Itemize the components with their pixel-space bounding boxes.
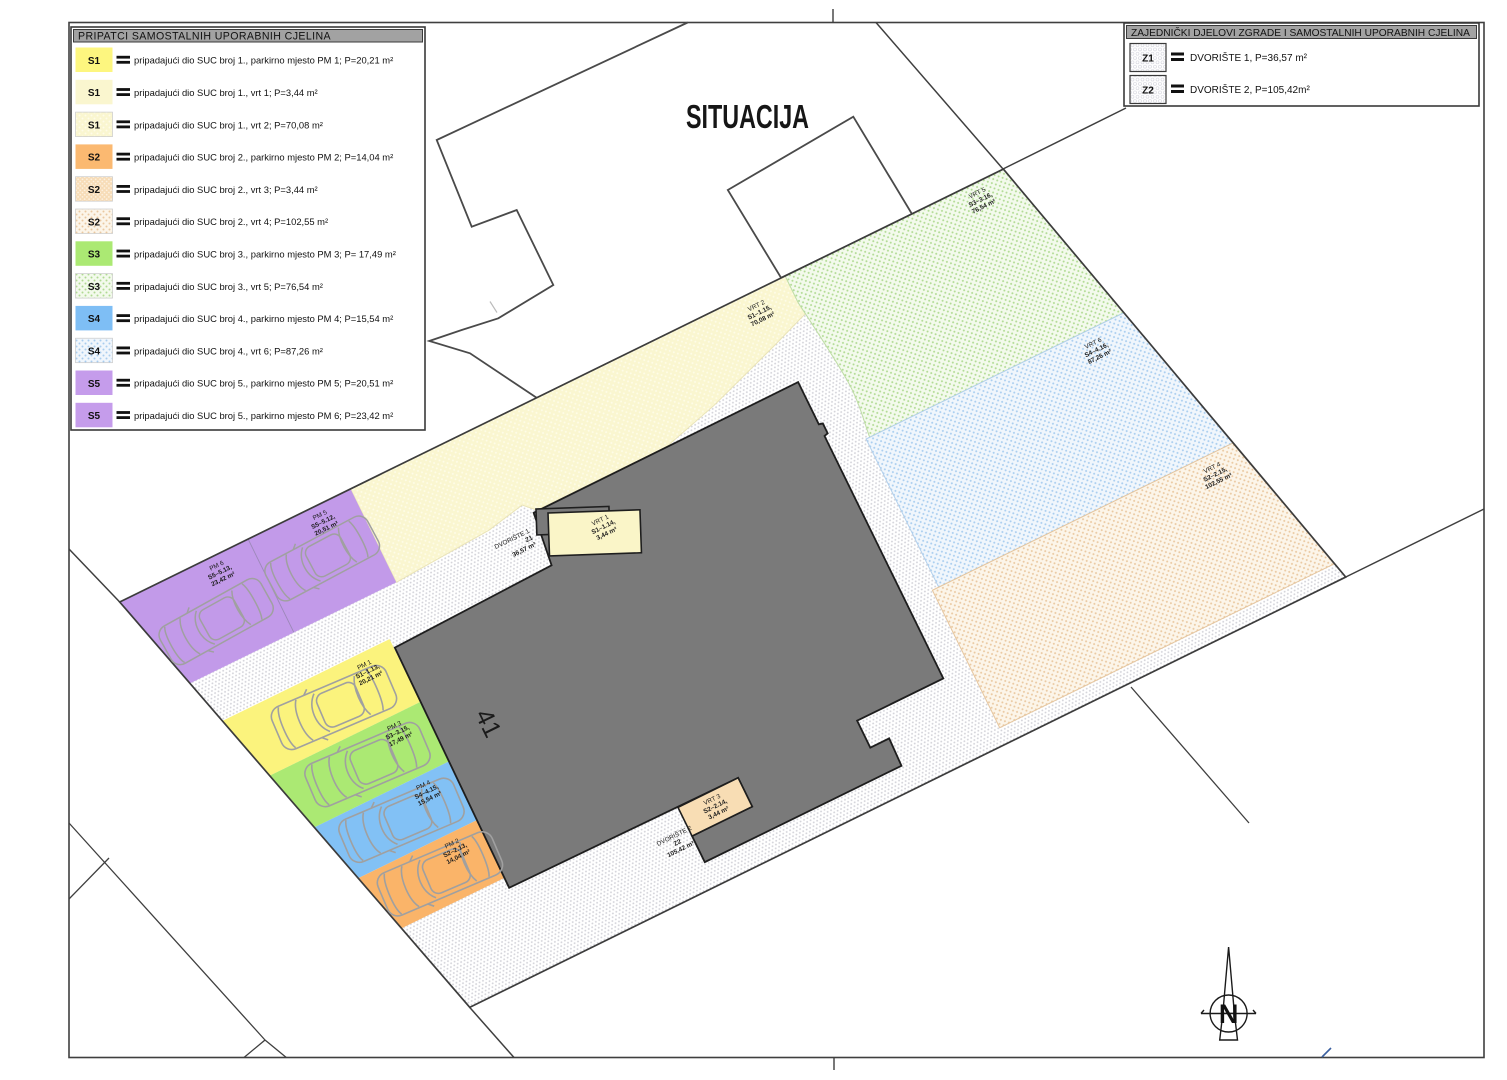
- svg-text:S3: S3: [88, 282, 101, 293]
- svg-text:pripadajući dio SUC broj 5., p: pripadajući dio SUC broj 5., parkirno mj…: [134, 410, 393, 421]
- svg-text:pripadajući dio SUC broj 3., v: pripadajući dio SUC broj 3., vrt 5; P=76…: [134, 281, 323, 292]
- svg-text:S1: S1: [88, 120, 101, 131]
- svg-text:S2: S2: [88, 153, 101, 164]
- svg-text:S5: S5: [88, 411, 101, 422]
- svg-text:pripadajući dio SUC broj 3., p: pripadajući dio SUC broj 3., parkirno mj…: [134, 249, 396, 260]
- svg-text:pripadajući dio SUC broj 2., v: pripadajući dio SUC broj 2., vrt 3; P=3,…: [134, 184, 318, 195]
- svg-text:SITUACIJA: SITUACIJA: [686, 98, 809, 135]
- svg-text:pripadajući dio SUC broj 4., v: pripadajući dio SUC broj 4., vrt 6; P=87…: [134, 345, 323, 356]
- svg-text:Z2: Z2: [1142, 86, 1154, 97]
- svg-text:pripadajući dio SUC broj 5., p: pripadajući dio SUC broj 5., parkirno mj…: [134, 378, 393, 389]
- svg-text:pripadajući dio SUC broj 4., p: pripadajući dio SUC broj 4., parkirno mj…: [134, 313, 393, 324]
- svg-text:pripadajući dio SUC broj 1., v: pripadajući dio SUC broj 1., vrt 2; P=70…: [134, 119, 323, 130]
- svg-text:DVORIŠTE 1, P=36,57 m²: DVORIŠTE 1, P=36,57 m²: [1190, 51, 1308, 64]
- svg-text:Z1: Z1: [1142, 54, 1154, 65]
- svg-text:S1: S1: [88, 88, 101, 99]
- svg-text:N: N: [1219, 999, 1239, 1029]
- svg-text:DVORIŠTE 2, P=105,42m²: DVORIŠTE 2, P=105,42m²: [1190, 83, 1310, 96]
- svg-text:S2: S2: [88, 185, 101, 196]
- svg-text:S5: S5: [88, 379, 101, 390]
- svg-text:pripadajući dio SUC broj 1., p: pripadajući dio SUC broj 1., parkirno mj…: [134, 55, 393, 66]
- svg-text:ZAJEDNIČKI DJELOVI ZGRADE I SA: ZAJEDNIČKI DJELOVI ZGRADE I SAMOSTALNIH …: [1131, 26, 1470, 39]
- svg-text:pripadajući dio SUC broj 1., v: pripadajući dio SUC broj 1., vrt 1; P=3,…: [134, 87, 318, 98]
- svg-text:S2: S2: [88, 217, 101, 228]
- svg-text:S1: S1: [88, 56, 101, 67]
- svg-text:pripadajući dio SUC broj 2., p: pripadajući dio SUC broj 2., parkirno mj…: [134, 152, 393, 163]
- svg-text:S3: S3: [88, 250, 101, 261]
- svg-text:S4: S4: [88, 347, 101, 358]
- svg-text:pripadajući dio SUC broj 2., v: pripadajući dio SUC broj 2., vrt 4; P=10…: [134, 216, 328, 227]
- svg-text:S4: S4: [88, 314, 101, 325]
- svg-text:PRIPATCI SAMOSTALNIH UPORABNIH: PRIPATCI SAMOSTALNIH UPORABNIH CJELINA: [78, 31, 332, 43]
